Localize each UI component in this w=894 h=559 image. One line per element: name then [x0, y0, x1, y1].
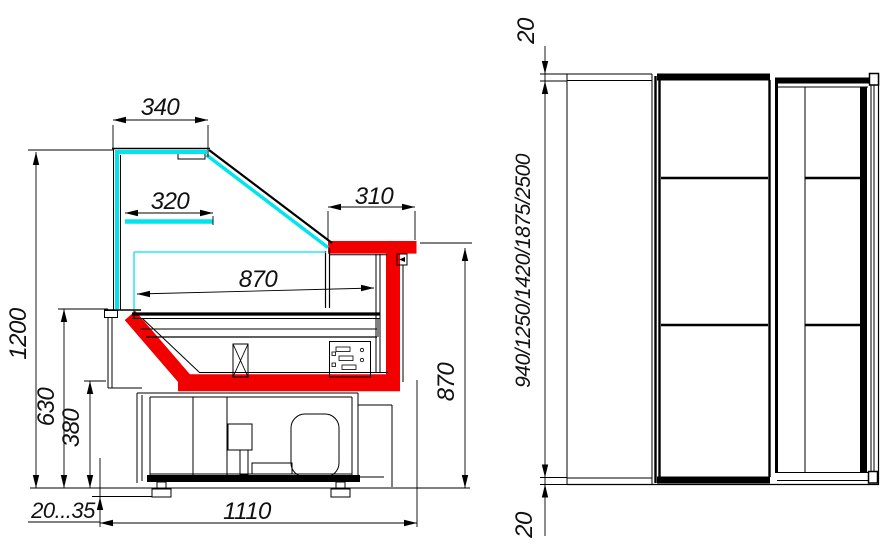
dim-label-870-depth: 870 — [239, 266, 279, 293]
plan-dimensions: 20 940/1250/1420/1875/2500 20 — [511, 17, 567, 539]
dim-label-310: 310 — [355, 183, 395, 210]
section-dimensions: 340 320 310 870 1200 630 380 20...35 111… — [5, 94, 472, 527]
end-cap — [869, 472, 878, 484]
dim-label-overhang-top: 20 — [513, 17, 540, 45]
drawing-svg: 340 320 310 870 1200 630 380 20...35 111… — [0, 0, 894, 559]
sloped-glass — [207, 155, 329, 248]
compressor — [291, 414, 339, 477]
dim-label-340: 340 — [141, 94, 181, 121]
section-view: 340 320 310 870 1200 630 380 20...35 111… — [5, 94, 472, 527]
dim-label-380: 380 — [58, 408, 85, 448]
door-handle-bar — [860, 87, 867, 472]
dim-label-length-options: 940/1250/1420/1875/2500 — [512, 153, 535, 388]
end-cap — [870, 74, 879, 86]
dim-label-320: 320 — [151, 188, 191, 215]
dim-label-leg-range: 20...35 — [30, 498, 96, 523]
machine-compartment — [137, 393, 384, 483]
adjustable-legs — [152, 482, 350, 497]
dim-label-1200: 1200 — [5, 307, 32, 360]
dim-label-1110: 1110 — [223, 498, 272, 525]
glass-highlight — [115, 151, 328, 310]
sloped-glass-outline — [209, 150, 332, 243]
dim-label-630: 630 — [33, 387, 60, 427]
relay-box — [228, 424, 252, 450]
section-structure — [30, 149, 470, 498]
plan-view: 20 940/1250/1420/1875/2500 20 — [511, 17, 879, 539]
plan-structure — [567, 74, 879, 486]
base-rail — [147, 475, 360, 482]
control-panel — [330, 342, 371, 378]
red-front-diagonal — [130, 316, 189, 385]
dim-label-870-height: 870 — [433, 362, 460, 402]
dim-label-overhang-bottom: 20 — [511, 511, 538, 539]
technical-drawing: 340 320 310 870 1200 630 380 20...35 111… — [0, 0, 894, 559]
